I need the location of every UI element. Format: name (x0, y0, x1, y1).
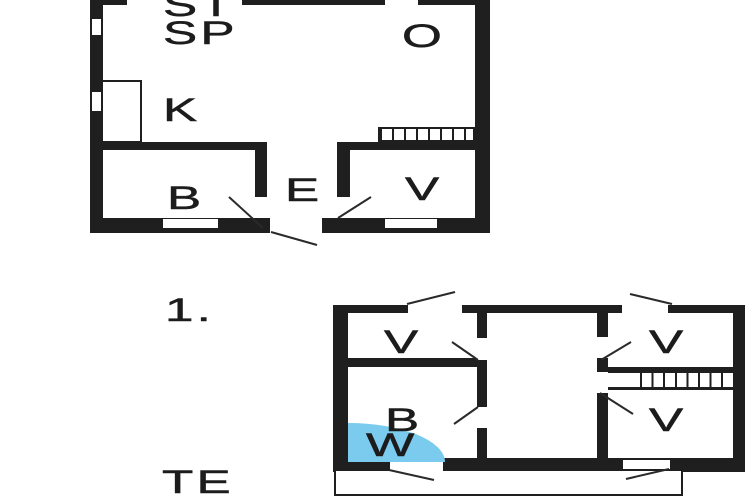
door-swing-line (338, 197, 371, 218)
door-swing-line (271, 232, 317, 245)
floor-plan-canvas: ST SP O K B E V 1 (0, 0, 750, 500)
swing-lines-overlay (0, 0, 750, 500)
door-swing-line (600, 393, 633, 414)
window-swing-line (630, 294, 672, 304)
window-swing-line (407, 292, 455, 304)
door-swing-line (229, 197, 263, 228)
door-swing-line (389, 470, 434, 480)
door-swing-line (601, 342, 631, 360)
window-swing-line (626, 469, 669, 479)
door-swing-line (452, 342, 478, 360)
door-swing-line (454, 407, 478, 424)
